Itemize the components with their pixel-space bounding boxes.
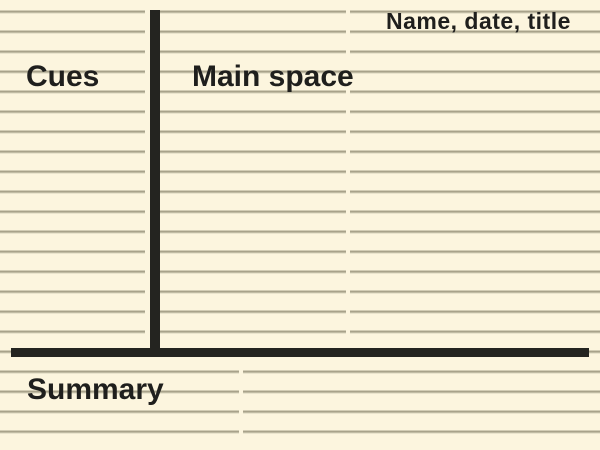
summary-divider-line [11, 348, 589, 357]
cues-column-label: Cues [26, 62, 99, 92]
summary-section-label: Summary [27, 375, 164, 405]
main-space-label: Main space [192, 62, 354, 92]
cue-column-divider-line [150, 10, 160, 348]
paper-seam-bottom [239, 357, 243, 450]
paper-seam-top-right [346, 0, 350, 348]
cornell-notes-page: Name, date, title Cues Main space Summar… [0, 0, 600, 450]
header-label: Name, date, title [386, 10, 571, 33]
